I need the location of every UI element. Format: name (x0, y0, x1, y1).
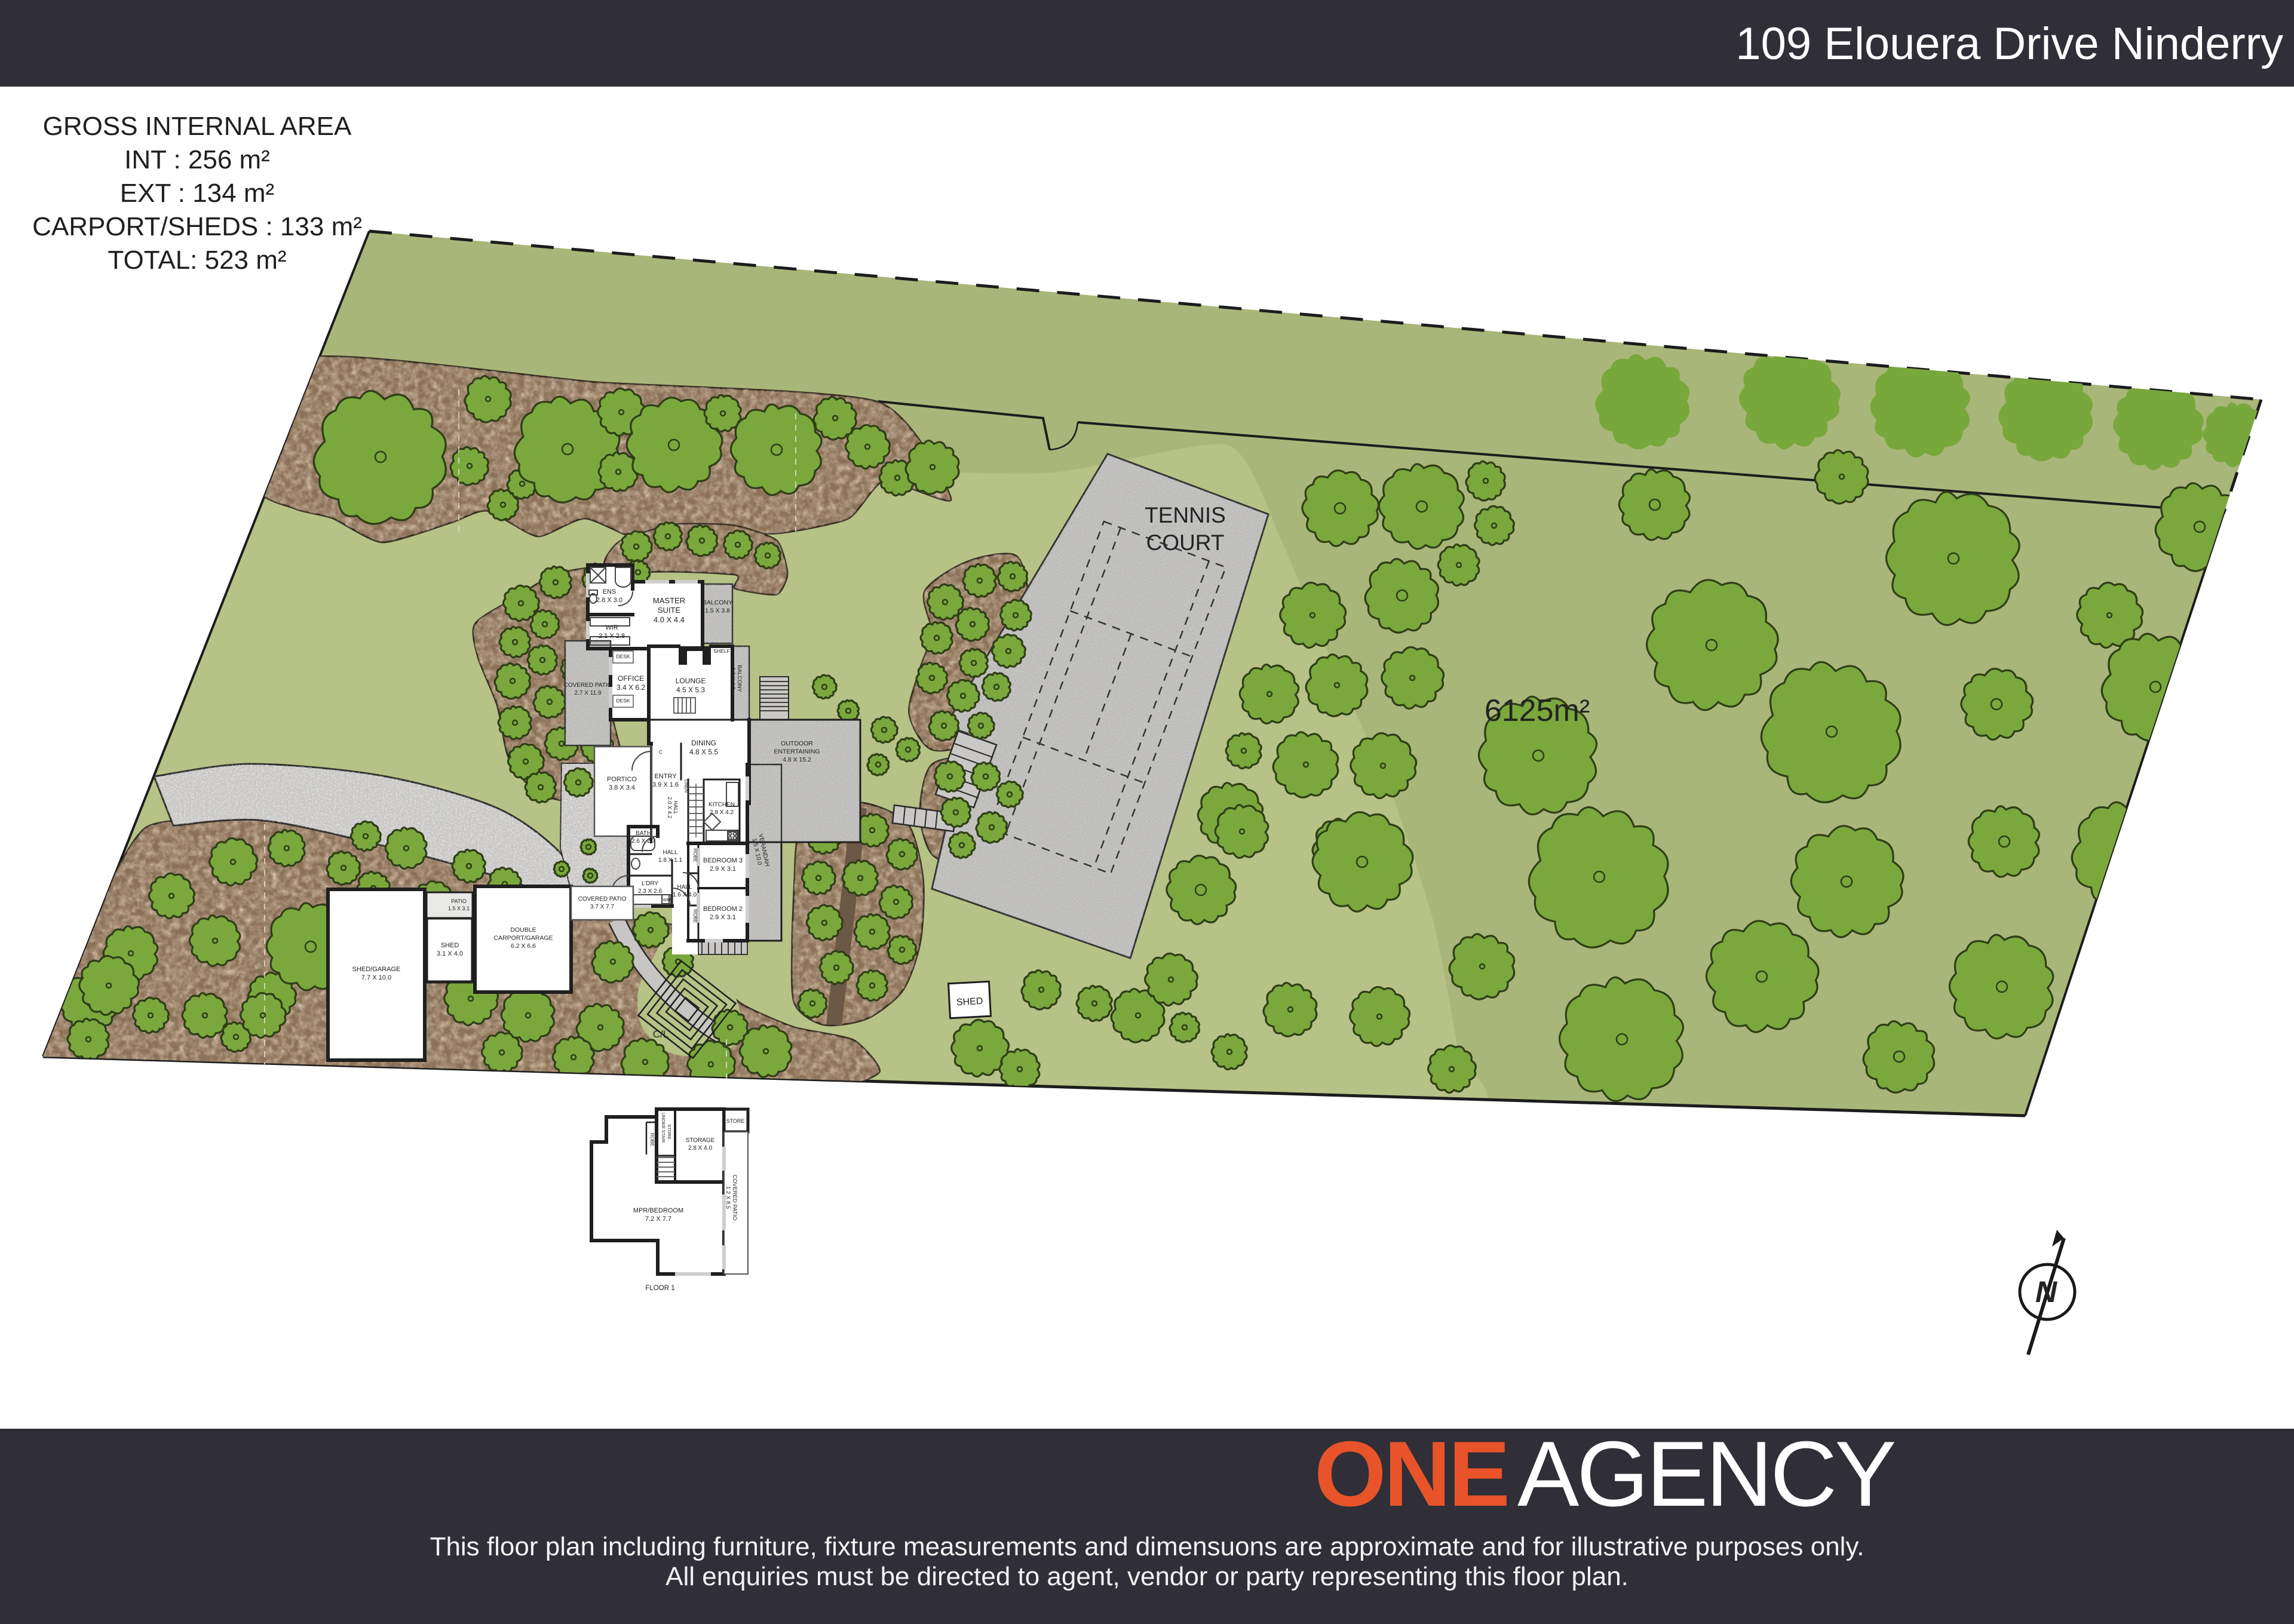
svg-text:3.9 X 1.6: 3.9 X 1.6 (652, 781, 679, 788)
svg-text:HALL: HALL (677, 884, 692, 891)
svg-text:BALCONY: BALCONY (703, 599, 732, 606)
svg-text:SUITE: SUITE (658, 606, 681, 615)
svg-text:2.0 X 4.2: 2.0 X 4.2 (667, 797, 673, 818)
svg-text:7.7 X 10.0: 7.7 X 10.0 (361, 974, 391, 981)
svg-text:MPR/BEDROOM: MPR/BEDROOM (633, 1207, 683, 1214)
svg-text:CARPORT/GARAGE: CARPORT/GARAGE (494, 935, 553, 942)
svg-text:2.9 X 3.1: 2.9 X 3.1 (710, 865, 736, 873)
svg-text:COVERED PATIO: COVERED PATIO (731, 1175, 738, 1221)
svg-text:ENTERTAINING: ENTERTAINING (774, 748, 820, 756)
svg-text:HALL: HALL (663, 849, 677, 856)
svg-text:4.0 X 4.4: 4.0 X 4.4 (654, 615, 685, 624)
svg-text:2.9 X 3.1: 2.9 X 3.1 (710, 914, 736, 921)
svg-text:GROSS INTERNAL AREA: GROSS INTERNAL AREA (43, 112, 352, 141)
svg-text:COVERED PATIO: COVERED PATIO (578, 896, 627, 902)
svg-text:KITCHEN: KITCHEN (709, 802, 735, 808)
svg-text:CARPORT/SHEDS : 133 m²: CARPORT/SHEDS : 133 m² (32, 212, 362, 241)
svg-text:ROBE: ROBE (692, 849, 698, 862)
svg-text:ROBE: ROBE (649, 1133, 655, 1147)
svg-text:PATIO: PATIO (451, 898, 467, 904)
svg-text:SHED: SHED (441, 942, 459, 949)
svg-text:0.9 X 4.2: 0.9 X 4.2 (729, 667, 736, 690)
svg-text:BEDROOM 3: BEDROOM 3 (703, 857, 743, 864)
svg-text:TOTAL: 523 m²: TOTAL: 523 m² (108, 245, 286, 275)
svg-text:109 Elouera Drive Ninderry: 109 Elouera Drive Ninderry (1735, 19, 2283, 69)
svg-text:TENNIS: TENNIS (1145, 503, 1226, 527)
svg-text:WM: WM (663, 897, 670, 902)
svg-text:4.8 X 5.5: 4.8 X 5.5 (689, 748, 718, 756)
svg-text:MASTER: MASTER (653, 596, 685, 605)
svg-text:This floor plan including furn: This floor plan including furniture, fix… (430, 1532, 1864, 1561)
svg-text:SHED/GARAGE: SHED/GARAGE (352, 966, 401, 973)
svg-text:4.5 X 5.3: 4.5 X 5.3 (676, 686, 705, 694)
svg-text:1.2 X 8.5: 1.2 X 8.5 (725, 1186, 731, 1209)
svg-text:ONE: ONE (1314, 1422, 1508, 1525)
svg-text:DINING: DINING (691, 739, 716, 747)
svg-text:1.5 X 3.8: 1.5 X 3.8 (705, 607, 730, 615)
svg-text:BALCONY: BALCONY (736, 665, 743, 692)
svg-text:4.8 X 15.2: 4.8 X 15.2 (783, 756, 811, 763)
svg-text:2.3 X 2.6: 2.3 X 2.6 (638, 888, 662, 895)
svg-text:2.8 X 3.0: 2.8 X 3.0 (596, 597, 622, 604)
svg-text:1.6 X 4.0: 1.6 X 4.0 (673, 892, 697, 898)
svg-text:ENTRY: ENTRY (654, 773, 677, 780)
svg-text:OUTDOOR: OUTDOOR (781, 740, 813, 747)
svg-text:PORTICO: PORTICO (607, 776, 637, 783)
svg-text:L’DRY: L’DRY (642, 880, 658, 887)
svg-text:ROBE: ROBE (692, 910, 698, 923)
svg-text:6125m²: 6125m² (1485, 693, 1590, 728)
svg-text:6.2 X 6.6: 6.2 X 6.6 (511, 943, 536, 950)
svg-text:ENS: ENS (603, 588, 617, 595)
svg-text:C/L: C/L (653, 1029, 668, 1040)
svg-text:2.1 X 2.8: 2.1 X 2.8 (599, 633, 625, 640)
svg-text:BATH: BATH (636, 830, 651, 837)
svg-text:7.2 X 7.7: 7.2 X 7.7 (645, 1215, 671, 1223)
svg-text:SHELF: SHELF (713, 648, 729, 654)
svg-text:UNDER STAIR: UNDER STAIR (661, 1113, 666, 1143)
svg-text:DESK: DESK (616, 698, 630, 704)
svg-text:EXT : 134 m²: EXT : 134 m² (120, 179, 274, 208)
svg-text:2.8 X 4.2: 2.8 X 4.2 (710, 809, 734, 816)
svg-text:LOUNGE: LOUNGE (676, 677, 706, 685)
svg-text:3.8 X 3.4: 3.8 X 3.4 (609, 784, 635, 791)
svg-text:2.6 X 2.7: 2.6 X 2.7 (631, 838, 655, 845)
svg-text:All enquiries must be directed: All enquiries must be directed to agent,… (665, 1562, 1629, 1591)
svg-text:BEDROOM 2: BEDROOM 2 (703, 905, 743, 913)
svg-text:HALL: HALL (673, 801, 679, 815)
svg-text:N: N (2035, 1275, 2057, 1309)
svg-text:COURT: COURT (1146, 530, 1225, 555)
svg-text:DOUBLE: DOUBLE (510, 926, 536, 934)
svg-text:STORAGE: STORAGE (686, 1137, 715, 1144)
svg-text:2.7 X 11.9: 2.7 X 11.9 (575, 690, 602, 696)
svg-text:FLOOR 1: FLOOR 1 (645, 1285, 674, 1292)
svg-text:DESK: DESK (616, 653, 630, 659)
svg-text:C: C (659, 749, 663, 755)
svg-text:2.8 X 4.0: 2.8 X 4.0 (688, 1145, 712, 1152)
svg-text:OFFICE: OFFICE (618, 674, 644, 683)
svg-text:WIR: WIR (605, 624, 618, 631)
svg-text:3.1 X 4.0: 3.1 X 4.0 (437, 950, 463, 957)
svg-text:STORE: STORE (726, 1118, 745, 1124)
svg-text:INT : 256 m²: INT : 256 m² (124, 145, 270, 174)
svg-text:1.5 X 3.1: 1.5 X 3.1 (448, 905, 470, 911)
svg-text:3.4 X 6.2: 3.4 X 6.2 (617, 683, 645, 692)
svg-text:COVERED PATIO: COVERED PATIO (564, 682, 612, 689)
svg-text:SHED: SHED (956, 996, 983, 1008)
svg-text:3.7 X 7.7: 3.7 X 7.7 (590, 904, 614, 910)
svg-text:STORE: STORE (667, 1124, 672, 1140)
svg-text:LINEN: LINEN (683, 779, 689, 793)
svg-text:AGENCY: AGENCY (1517, 1422, 1894, 1525)
svg-text:1.8 X 1.1: 1.8 X 1.1 (658, 857, 682, 864)
